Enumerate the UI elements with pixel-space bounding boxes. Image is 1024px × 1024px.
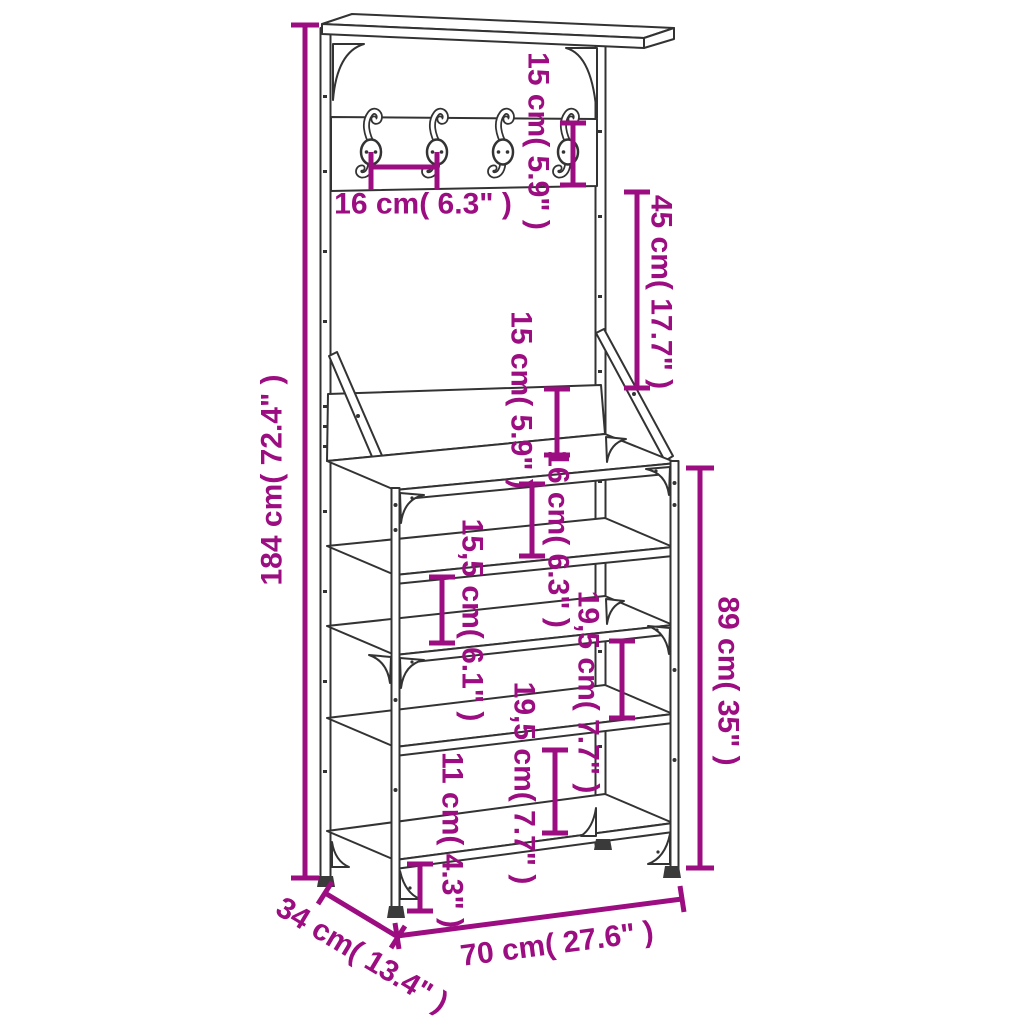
dimension-overall-height: 184 cm( 72.4" ) [256,25,320,878]
brace-screw [356,414,360,418]
dimension-label: 16 cm( 6.3" ) [334,188,512,221]
dimension-label: 16 cm( 6.3" ) [542,450,575,628]
dimension-label: 15,5 cm( 6.1" ) [456,519,489,722]
dimension-label: 19,5 cm( 7.7" ) [508,682,541,885]
top-right-gusset [566,48,597,118]
furniture-dimension-diagram: 15 cm( 5.9" ) 16 cm( 6.3" ) 45 cm( 17.7"… [0,0,1024,1024]
dimension-hook-board-to-panel: 45 cm( 17.7" ) [624,192,678,389]
dimension-label: 184 cm( 72.4" ) [256,374,289,585]
dimension-label: 11 cm( 4.3" ) [436,752,469,928]
dimension-label: 15 cm( 5.9" ) [522,52,555,230]
dimension-label: 45 cm( 17.7" ) [645,195,678,389]
dimension-label: 89 cm( 35" ) [712,596,745,765]
shelf-5 [327,794,673,869]
brace-screw [632,392,636,396]
dimension-label: 19,5 cm( 7.7" ) [572,591,605,794]
top-shelf [322,14,674,118]
furniture-drawing [317,14,681,918]
dimension-depth: 34 cm( 13.4" ) [270,882,454,1019]
diagram-canvas: 15 cm( 5.9" ) 16 cm( 6.3" ) 45 cm( 17.7"… [0,0,1024,1024]
front-right-leg [671,461,679,873]
dimension-label: 15 cm( 5.9" ) [505,311,538,489]
top-left-gusset [333,44,364,100]
dimension-bench-height: 89 cm( 35" ) [686,468,745,868]
shelf-2 [327,518,673,584]
